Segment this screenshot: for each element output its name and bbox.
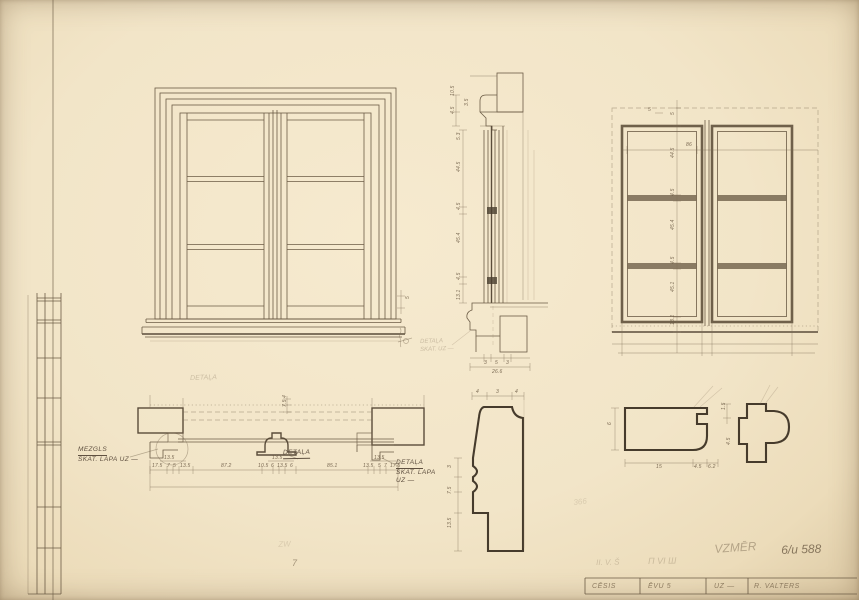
dim-label: 44.5 xyxy=(457,161,462,172)
dim-label: 10.5 xyxy=(258,464,269,469)
dim-label: 13.5 xyxy=(374,456,385,461)
dim-label: 13.5 xyxy=(277,464,288,469)
dim-label: 45.1 xyxy=(671,281,676,292)
titleblock-cell-location: CĒSIS xyxy=(592,583,616,590)
dim-label: 4.5 xyxy=(694,465,702,470)
section-vertical xyxy=(452,73,548,371)
dim-label: 6 xyxy=(271,464,274,469)
dim-label: 7.5 xyxy=(448,486,453,494)
margin-strip xyxy=(28,0,61,600)
dim-label: 13.5 xyxy=(180,464,191,469)
dim-label: 3 xyxy=(506,361,509,366)
pencil-note: VZMĒR xyxy=(714,539,757,556)
label-mezgls-title: MEZGLS xyxy=(78,446,107,456)
dim-label: 86 xyxy=(686,143,692,148)
dim-label: 7 xyxy=(167,464,170,469)
pencil-note: DETAĻA xyxy=(190,374,217,382)
dim-label: 5 xyxy=(648,108,651,113)
dim-label: 5.3 xyxy=(457,132,462,140)
dim-label: 3 xyxy=(484,361,487,366)
dim-label: 4 xyxy=(515,390,518,395)
label-detala-right: DETAĻA SKAT. LAPA UZ — xyxy=(396,459,436,485)
dim-label: 85.1 xyxy=(327,464,338,469)
titleblock-cell-sheet: ĒVU 5 xyxy=(648,583,671,590)
pencil-note: 6/u 588 xyxy=(781,542,822,557)
dim-label: 13.1 xyxy=(457,289,462,300)
dim-label: 4 xyxy=(283,395,288,398)
pencil-note: 7 xyxy=(292,558,297,568)
dim-label: 5 xyxy=(495,361,498,366)
dim-label: 4.5 xyxy=(451,106,456,114)
dim-label: 6 xyxy=(608,422,613,425)
dim-label: 4.5 xyxy=(457,272,462,280)
dim-label: 13.5 xyxy=(363,464,374,469)
pencil-note: П VI Ш xyxy=(648,556,676,566)
pencil-note: SKAT. UZ — xyxy=(420,346,454,353)
dim-label: 3 xyxy=(496,390,499,395)
label-detala-center: DETAĻA xyxy=(283,449,310,459)
dim-label: 4 xyxy=(476,390,479,395)
pencil-note: ZW xyxy=(278,539,291,549)
pencil-note: 366 xyxy=(573,497,587,507)
pencil-note: II. V. Š xyxy=(596,558,620,567)
dim-label: 5 xyxy=(671,112,676,115)
dim-label: 7.5 xyxy=(283,399,288,407)
dim-label: 10.5 xyxy=(451,85,456,96)
profile-mullion-detail xyxy=(739,385,789,462)
dim-label: 4.5 xyxy=(671,256,676,264)
pencil-note: DETAĻA xyxy=(420,338,443,345)
dim-label: 3.5 xyxy=(465,98,470,106)
dim-label: 17.5 xyxy=(152,464,163,469)
dim-label: 5 xyxy=(406,296,411,299)
dim-label: 5 xyxy=(378,464,381,469)
dim-label: 4.5 xyxy=(727,437,732,445)
dim-label: 13.5 xyxy=(272,456,283,461)
dim-label: 6 xyxy=(290,464,293,469)
dim-label: 17.5 xyxy=(390,464,401,469)
dim-label: 15 xyxy=(656,465,662,470)
dim-label: 5 xyxy=(173,464,176,469)
dim-label: 7 xyxy=(384,464,387,469)
dim-label: 45.4 xyxy=(671,219,676,230)
plan-section xyxy=(130,395,424,491)
dim-label: 3 xyxy=(448,465,453,468)
profile-board-detail xyxy=(611,386,731,467)
elevation-front xyxy=(142,88,412,347)
dim-label: 1.5 xyxy=(722,402,727,410)
dim-label: 13.1 xyxy=(671,314,676,325)
dim-label: 13.5 xyxy=(448,517,453,528)
dim-label: 45.4 xyxy=(457,232,462,243)
dim-label: 44.5 xyxy=(671,147,676,158)
titleblock-cell-author: R. VALTERS xyxy=(754,583,800,590)
linework-canvas xyxy=(0,0,859,600)
label-mezgls: MEZGLS SKAT. LAPA UZ — xyxy=(78,446,138,464)
dim-label: 13.5 xyxy=(164,456,175,461)
titleblock-cell-ref: UZ — xyxy=(714,583,735,590)
dim-label: 26.6 xyxy=(492,370,503,375)
dim-label: 87.2 xyxy=(221,464,232,469)
label-mezgls-sub: SKAT. LAPA UZ — xyxy=(78,456,138,463)
profile-sill-detail xyxy=(454,392,524,551)
dim-label: 6.2 xyxy=(708,465,716,470)
elevation-rear xyxy=(612,100,818,356)
drawing-sheet: MEZGLS SKAT. LAPA UZ — DETAĻA DETAĻA SKA… xyxy=(0,0,859,600)
dim-label: 4.5 xyxy=(457,202,462,210)
dim-label: 4.5 xyxy=(671,188,676,196)
